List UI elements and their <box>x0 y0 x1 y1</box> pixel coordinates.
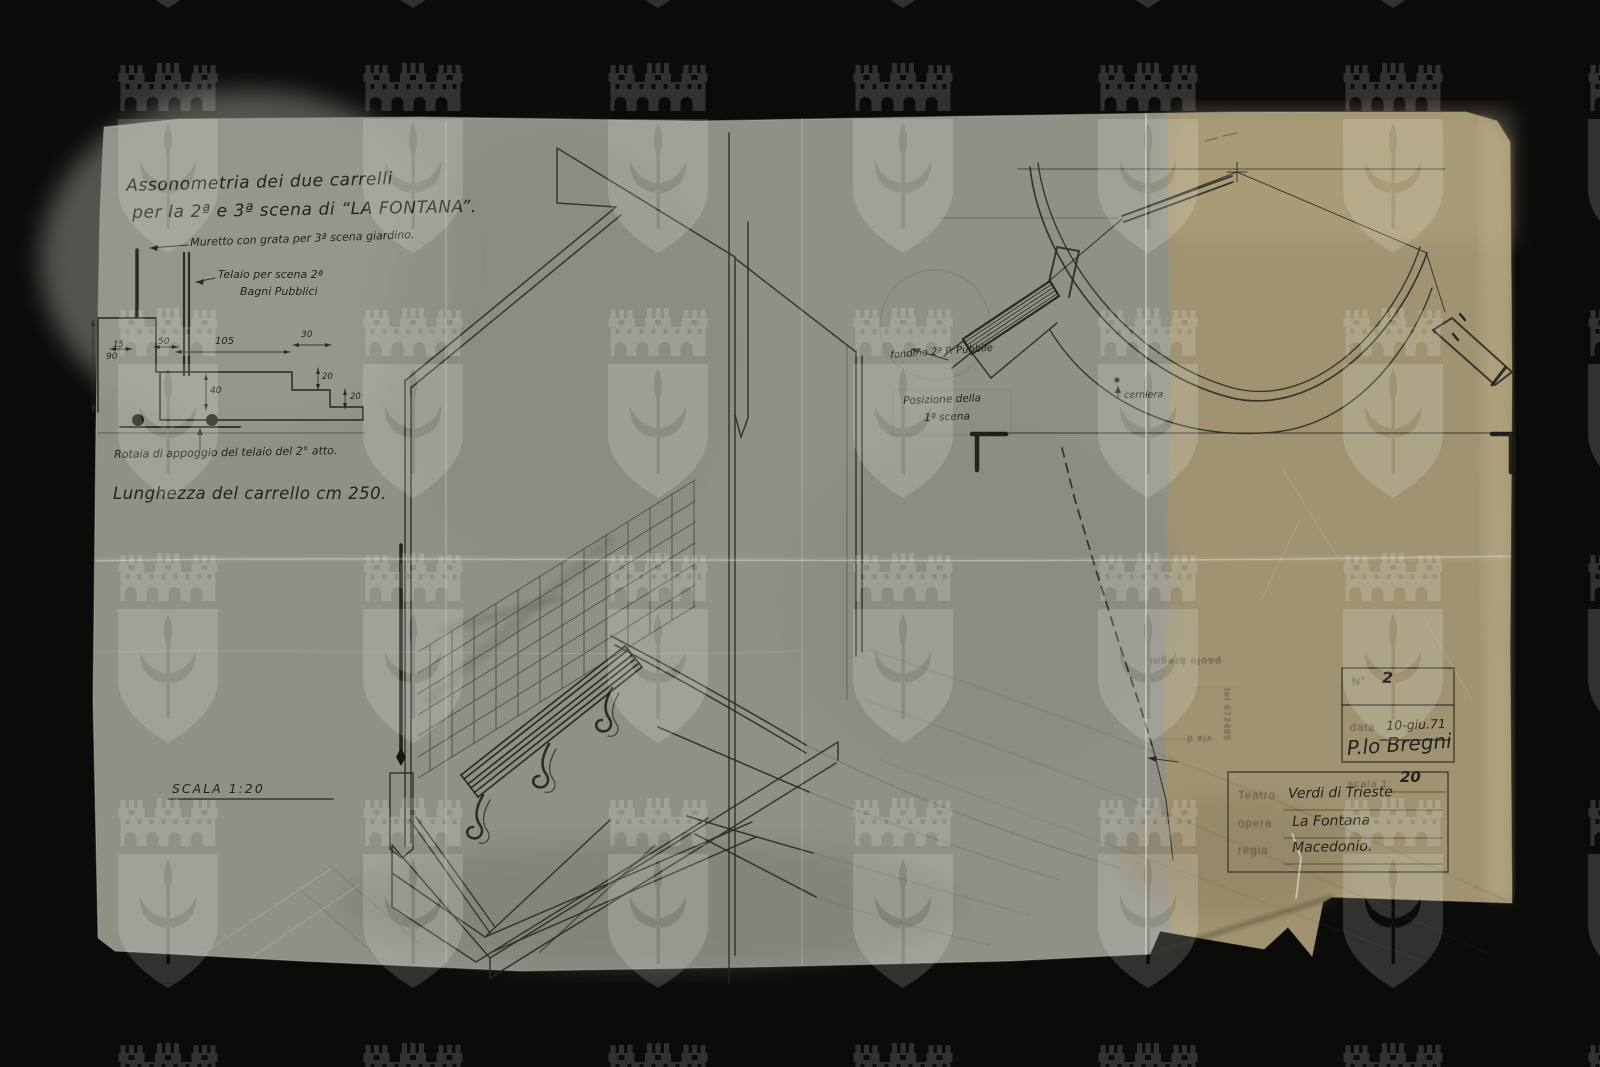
drawing-title-line1: Assonometria dei due carrelli <box>126 169 393 196</box>
note-telaio-2: Bagni Pubblici <box>240 285 318 298</box>
note-muretto: Muretto con grata per 3ª scena giardino. <box>190 228 415 249</box>
dim-90: 90 <box>106 352 117 362</box>
titleblock-label-opera: opera <box>1238 818 1272 830</box>
dim-15: 15 <box>113 340 124 350</box>
dim-40: 40 <box>210 386 221 396</box>
sheet-date-label: data <box>1350 722 1375 734</box>
titleblock-label-regia: regia <box>1238 845 1269 857</box>
note-fondino: fondino 2ª P. Pubbile <box>890 343 993 361</box>
note-telaio-1: Telaio per scena 2ª <box>218 268 323 281</box>
note-rotaia: Rotaia di appoggio del telaio del 2° att… <box>114 444 337 461</box>
scale-label: SCALA 1:20 <box>172 781 265 796</box>
archival-photo: Assonometria dei due carrelli per la 2ª … <box>0 0 1600 1067</box>
dim-50: 50 <box>158 337 169 347</box>
note-posizione-1: Posizione della <box>903 392 981 407</box>
dim-105: 105 <box>215 336 234 347</box>
dim-20b: 20 <box>350 392 361 402</box>
note-posizione-2: 1ª scena <box>924 410 970 424</box>
note-lunghezza: Lunghezza del carrello cm 250. <box>113 484 387 503</box>
maker-stamp-phone: tel 672485 <box>1222 688 1232 741</box>
titleblock-label-teatro: Teatro <box>1238 790 1276 802</box>
dim-30: 30 <box>301 330 312 340</box>
annotation-layer: Assonometria dei due carrelli per la 2ª … <box>0 0 1600 1067</box>
drawing-title-line2: per la 2ª e 3ª scena di “LA FONTANA”. <box>132 197 477 223</box>
titleblock-value-regia: Macedonio. <box>1292 839 1372 856</box>
maker-stamp-name: paolo bregni <box>1130 655 1240 666</box>
titleblock-value-teatro: Verdi di Trieste <box>1288 784 1393 802</box>
dim-20a: 20 <box>322 372 333 382</box>
sheet-number-label: N° <box>1352 676 1366 688</box>
sheet-number-value: 2 <box>1382 668 1393 687</box>
note-cerniera: cerniera <box>1124 389 1163 401</box>
maker-stamp-extra: ·· ········· <box>1175 683 1255 692</box>
titleblock-value-opera: La Fontana <box>1292 813 1370 830</box>
titleblock-scala-value: 20 <box>1400 768 1421 786</box>
